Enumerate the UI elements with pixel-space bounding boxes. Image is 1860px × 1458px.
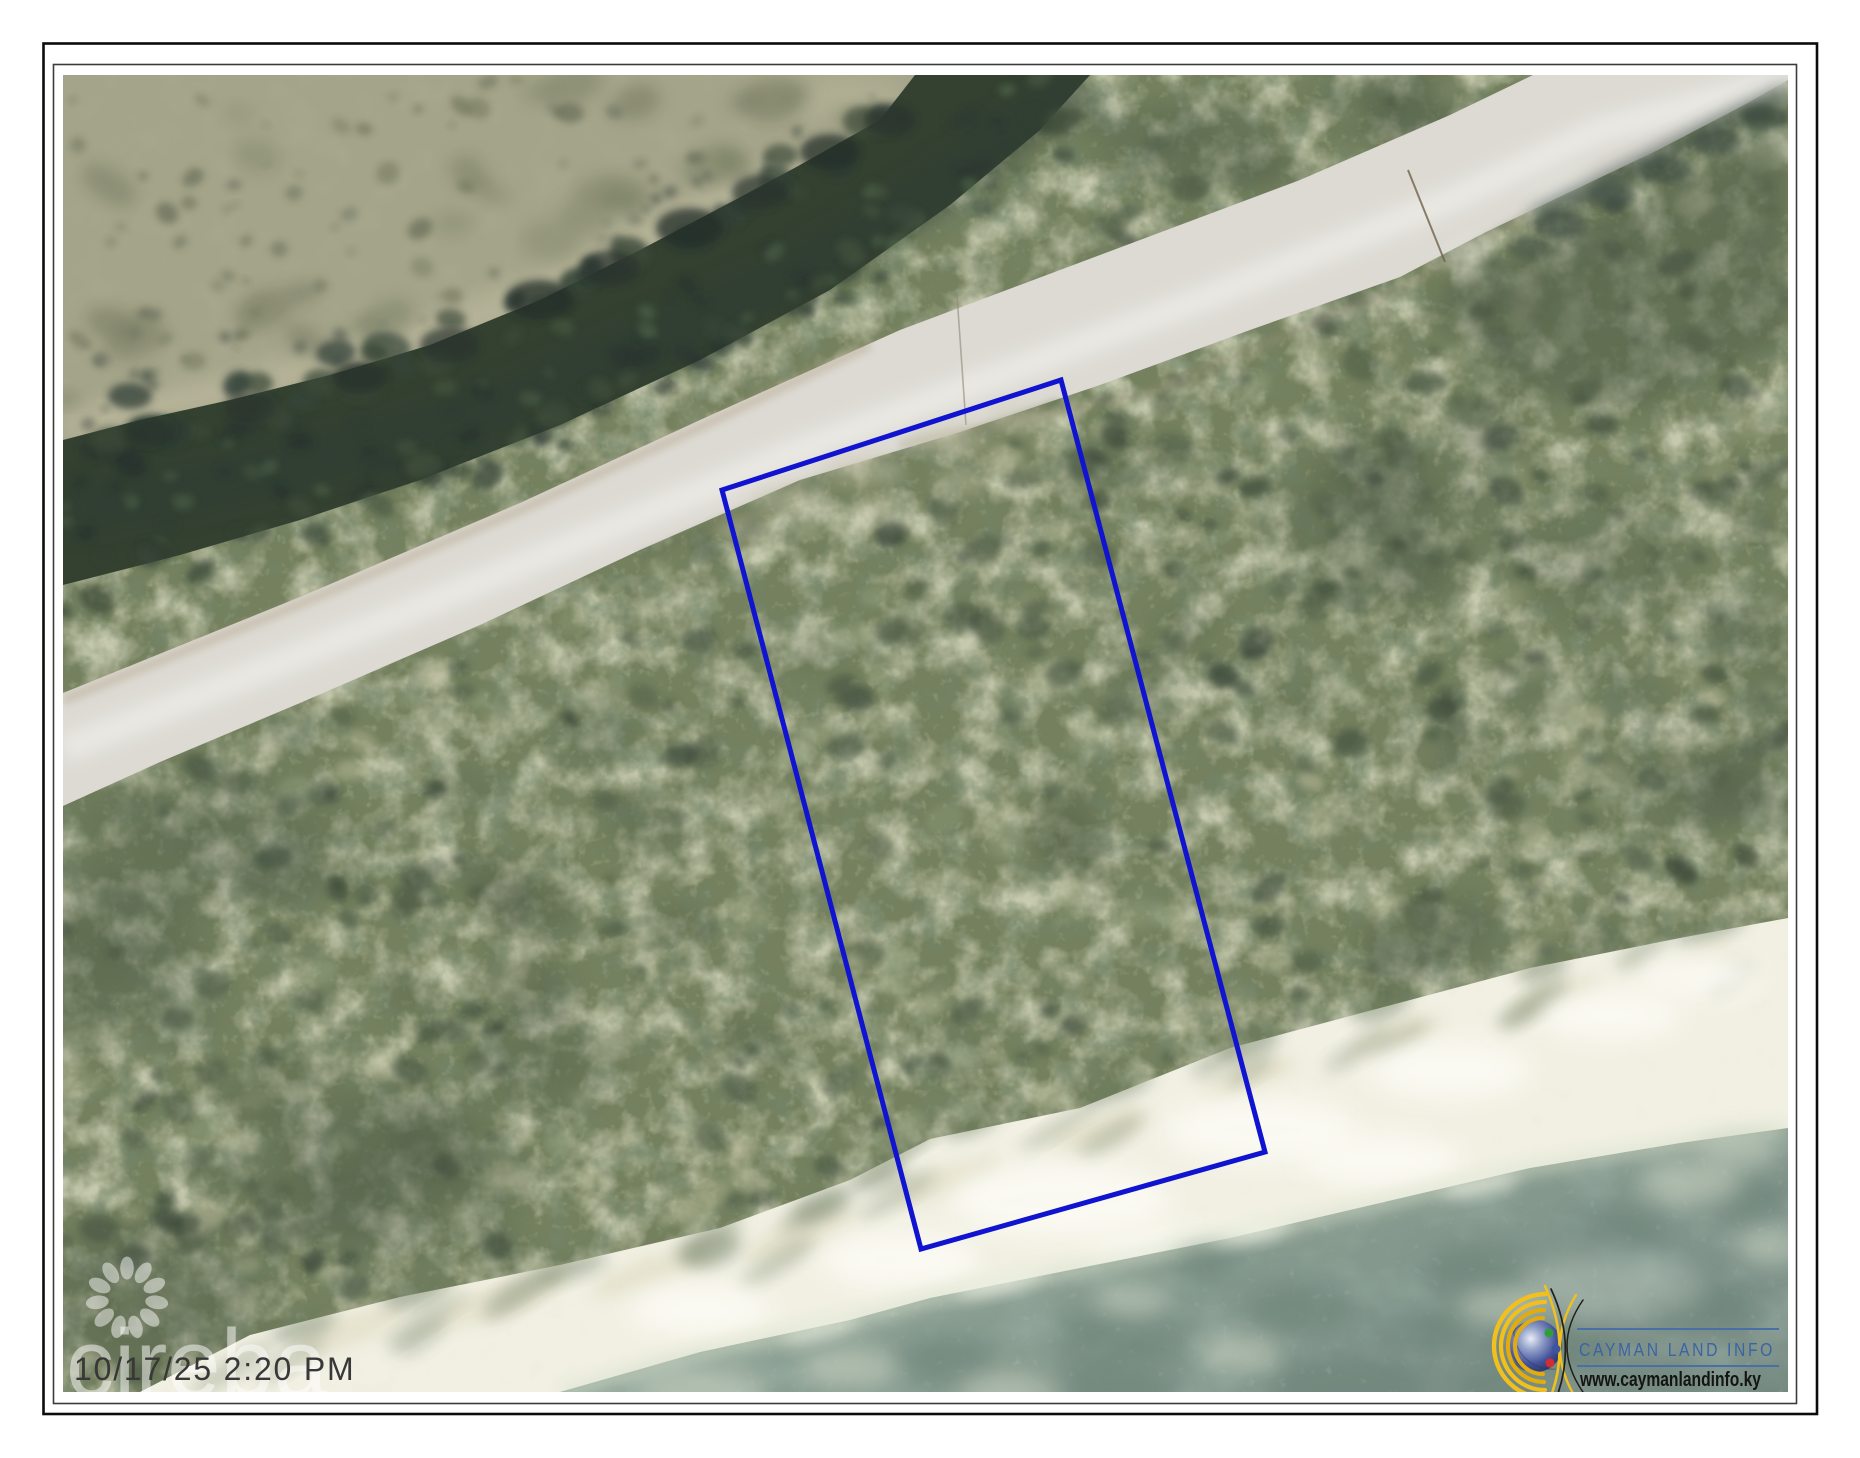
svg-text:10/17/25 2:20 PM: 10/17/25 2:20 PM bbox=[74, 1351, 355, 1387]
svg-text:www.caymanlandinfo.ky: www.caymanlandinfo.ky bbox=[1579, 1369, 1761, 1391]
svg-text:CAYMAN LAND INFO: CAYMAN LAND INFO bbox=[1579, 1340, 1775, 1360]
